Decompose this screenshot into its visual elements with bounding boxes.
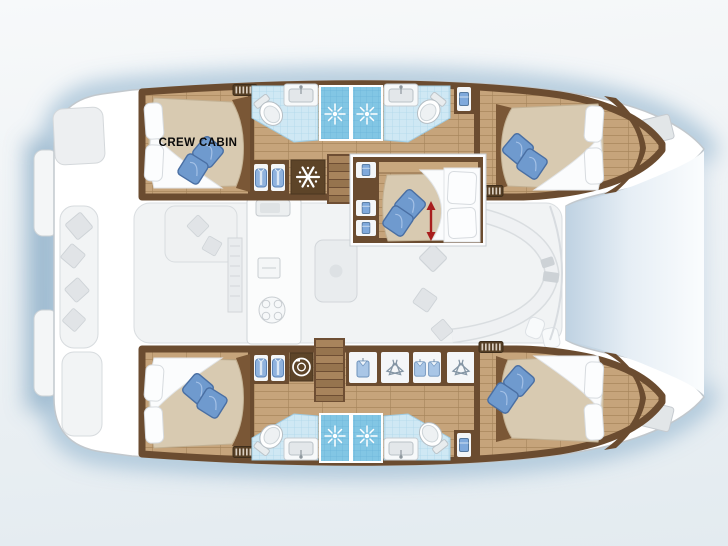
ghost-companionway bbox=[228, 238, 242, 312]
pillow bbox=[447, 207, 477, 238]
starboard-wardrobe bbox=[346, 349, 479, 386]
pillow bbox=[144, 145, 164, 182]
snowflake-icon bbox=[291, 160, 325, 194]
ghost-table bbox=[315, 240, 357, 302]
vent-grille-icon bbox=[479, 342, 503, 353]
pillow bbox=[584, 148, 604, 185]
towel-locker bbox=[454, 430, 474, 460]
port-shower-stalls bbox=[320, 86, 382, 140]
towel-icon bbox=[460, 93, 469, 106]
starboard-hull bbox=[142, 338, 662, 462]
sink-icon bbox=[284, 438, 318, 460]
shirt-icon bbox=[415, 359, 426, 376]
pillow bbox=[447, 171, 477, 204]
pillow bbox=[144, 364, 164, 401]
pillow bbox=[584, 403, 604, 440]
stove-icon bbox=[259, 297, 285, 323]
shower-icon bbox=[357, 104, 377, 124]
port-cabinets bbox=[251, 160, 325, 194]
towel-icon bbox=[460, 439, 469, 452]
starboard-stairs bbox=[314, 338, 345, 402]
pillow bbox=[584, 362, 604, 399]
pillow bbox=[144, 102, 164, 139]
crew-cabin-label: CREW CABIN bbox=[159, 137, 238, 149]
jacket-icon bbox=[273, 169, 284, 187]
pillow bbox=[584, 105, 604, 142]
pillow bbox=[144, 407, 164, 444]
jacket-icon bbox=[256, 359, 267, 377]
sink-icon bbox=[384, 438, 418, 460]
shirt-icon bbox=[357, 358, 369, 377]
towel-icon bbox=[362, 222, 370, 233]
towel-icon bbox=[362, 202, 370, 213]
jacket-icon bbox=[273, 359, 284, 377]
yacht-floorplan-canvas: CREW CABIN bbox=[0, 0, 728, 546]
crew-cabin: CREW CABIN bbox=[144, 85, 257, 199]
floor-plan: CREW CABIN bbox=[0, 0, 728, 546]
shower-icon bbox=[357, 426, 377, 446]
starboard-aft-cabin bbox=[144, 348, 257, 458]
starboard-cabinets bbox=[251, 352, 313, 384]
towel-locker bbox=[454, 84, 474, 114]
center-cabin bbox=[350, 154, 486, 246]
cabin-wall bbox=[474, 350, 480, 458]
shower-icon bbox=[325, 426, 345, 446]
ghost-galley bbox=[247, 198, 301, 344]
center-cabin-lockers bbox=[353, 157, 379, 243]
starboard-shower-stalls bbox=[320, 414, 382, 462]
sink-icon bbox=[284, 84, 318, 106]
shirt-icon bbox=[429, 359, 440, 376]
shower-icon bbox=[325, 104, 345, 124]
sink-icon bbox=[384, 84, 418, 106]
washing-machine-icon bbox=[290, 353, 313, 381]
towel-icon bbox=[362, 164, 370, 175]
jacket-icon bbox=[256, 169, 267, 187]
